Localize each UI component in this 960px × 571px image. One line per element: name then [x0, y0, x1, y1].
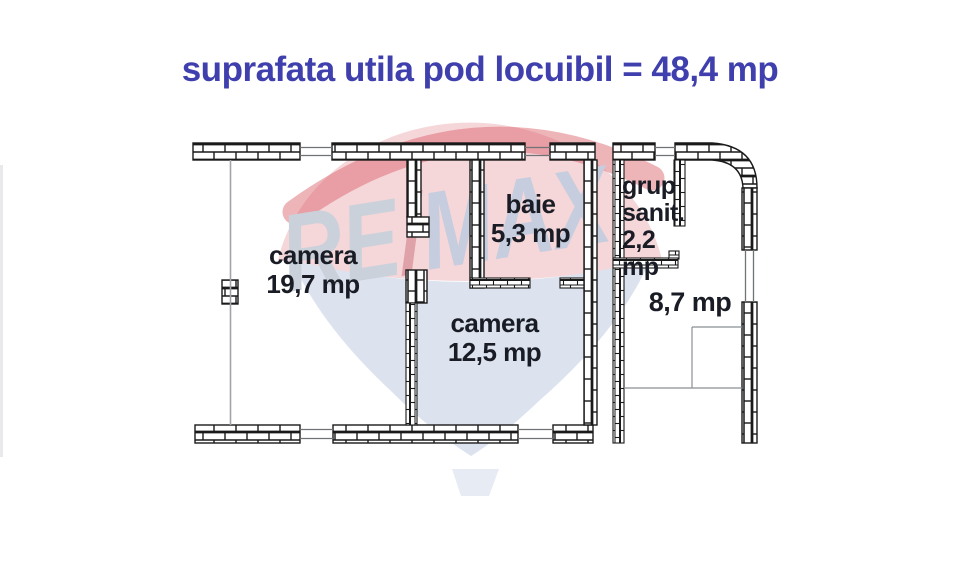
wall-right-main — [584, 160, 597, 425]
wall-bottom-left — [195, 425, 300, 443]
window-annex-top — [655, 148, 675, 156]
wall-camera12-left — [406, 303, 417, 425]
wall-top-left — [193, 143, 300, 160]
room-name: baie — [478, 190, 583, 219]
room-area: 2,2 mp — [622, 227, 697, 281]
label-camera-12: camera 12,5 mp — [442, 309, 547, 367]
wall-stub-foot — [407, 217, 429, 237]
label-camera-19: camera 19,7 mp — [258, 241, 368, 299]
wall-top-mid — [332, 143, 525, 160]
window-bottom-2 — [518, 430, 553, 439]
room-name-line1: grup — [622, 173, 697, 200]
window-top-1 — [300, 148, 332, 156]
balloon-basket — [452, 469, 499, 496]
wall-annex-right-upper — [742, 188, 757, 250]
wall-bottom-right — [553, 425, 593, 443]
room-area: 19,7 mp — [258, 270, 368, 299]
room-area: 12,5 mp — [442, 338, 547, 367]
window-bottom-1 — [300, 430, 333, 439]
label-grup-sanitar: grup sanit. 2,2 mp — [622, 173, 697, 281]
wall-baie-bottom-1 — [470, 278, 530, 288]
page-title: suprafata utila pod locuibil = 48,4 mp — [0, 50, 960, 90]
wall-stub-top — [407, 160, 421, 217]
wall-top-right — [550, 143, 595, 160]
label-baie: baie 5,3 mp — [478, 190, 583, 248]
label-hol: 8,7 mp — [645, 288, 735, 317]
room-name: camera — [442, 309, 547, 338]
wall-bottom-mid — [333, 425, 518, 443]
room-name-line2: sanit. — [622, 200, 697, 227]
room-area: 5,3 mp — [478, 219, 583, 248]
wall-camera12-left-top — [406, 270, 427, 303]
wall-annex-right-lower — [742, 302, 757, 443]
hall-interior-lines — [624, 327, 742, 388]
wall-annex-top-left — [613, 143, 655, 160]
room-name: camera — [258, 241, 368, 270]
floorplan-page: suprafata utila pod locuibil = 48,4 mp — [0, 0, 960, 571]
room-area: 8,7 mp — [645, 288, 735, 317]
window-annex-right — [746, 250, 754, 302]
